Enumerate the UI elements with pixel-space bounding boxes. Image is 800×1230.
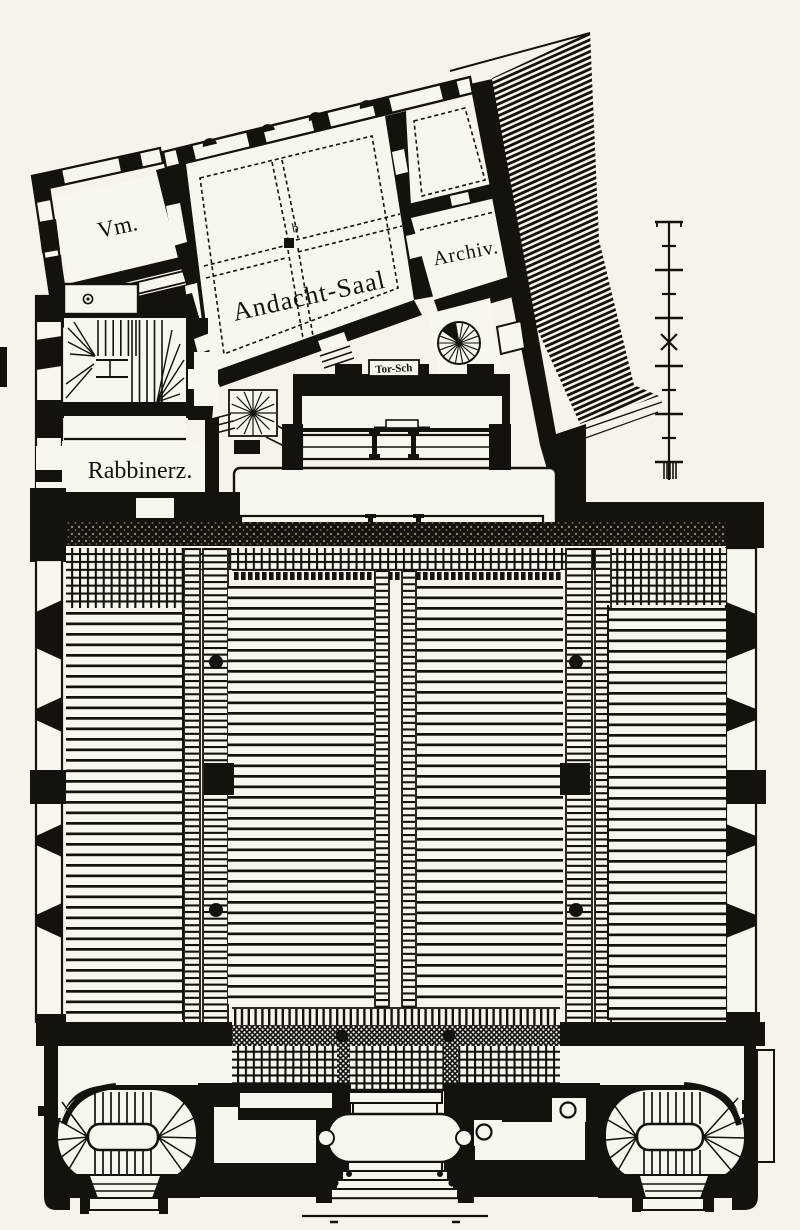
svg-text:Tor-Sch: Tor-Sch bbox=[375, 362, 413, 376]
svg-text:Rabbinerz.: Rabbinerz. bbox=[88, 458, 193, 484]
